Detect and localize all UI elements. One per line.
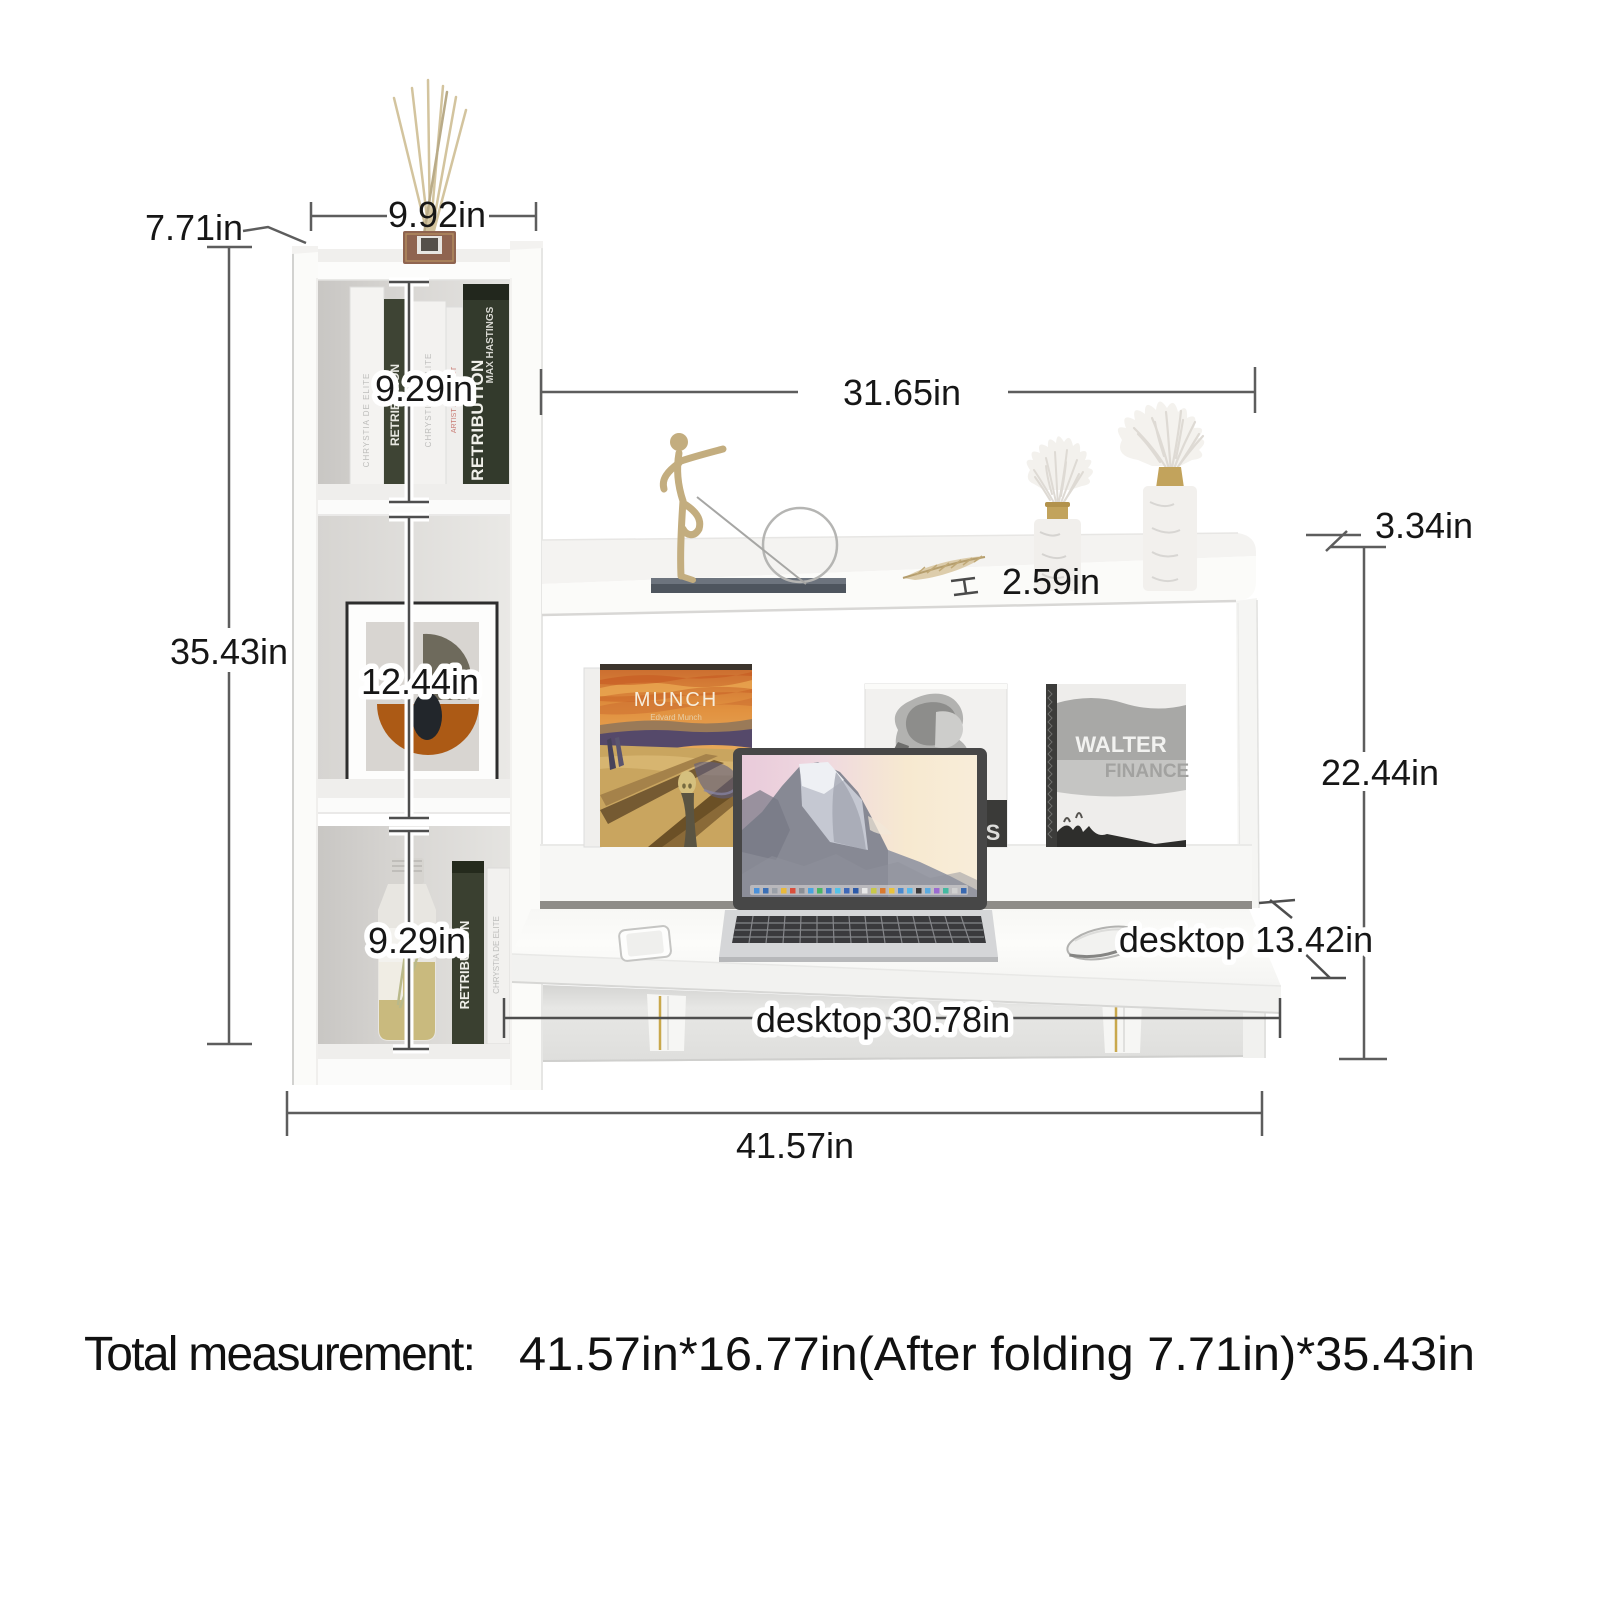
svg-text:CHRYSTIA DE ELITE: CHRYSTIA DE ELITE [362, 373, 371, 468]
svg-text:MAX HASTINGS: MAX HASTINGS [485, 306, 496, 383]
svg-text:41.57in*16.77in(After folding: 41.57in*16.77in(After folding 7.71in)*35… [519, 1327, 1475, 1380]
svg-text:desktop 30.78in: desktop 30.78in [756, 999, 1010, 1040]
svg-text:9.29in: 9.29in [375, 368, 473, 409]
svg-text:FINANCE: FINANCE [1105, 761, 1189, 782]
svg-text:7.71in: 7.71in [145, 207, 243, 248]
svg-text:41.57in: 41.57in [736, 1125, 854, 1166]
svg-text:MUNCH: MUNCH [634, 689, 718, 711]
svg-text:desktop 13.42in: desktop 13.42in [1119, 919, 1373, 960]
svg-text:35.43in: 35.43in [170, 631, 288, 672]
svg-text:9.92in: 9.92in [388, 194, 486, 235]
svg-text:Edvard Munch: Edvard Munch [650, 713, 702, 722]
svg-text:9.29in: 9.29in [368, 920, 466, 961]
svg-text:Total measurement:: Total measurement: [84, 1328, 476, 1381]
svg-text:2.59in: 2.59in [1002, 561, 1100, 602]
svg-text:S: S [986, 820, 1001, 845]
svg-text:WALTER: WALTER [1075, 732, 1166, 757]
svg-text:22.44in: 22.44in [1321, 752, 1439, 793]
svg-text:12.44in: 12.44in [361, 661, 479, 702]
svg-text:CHRYSTIA DE ELITE: CHRYSTIA DE ELITE [492, 916, 501, 994]
svg-text:31.65in: 31.65in [843, 372, 961, 413]
svg-text:3.34in: 3.34in [1375, 505, 1473, 546]
